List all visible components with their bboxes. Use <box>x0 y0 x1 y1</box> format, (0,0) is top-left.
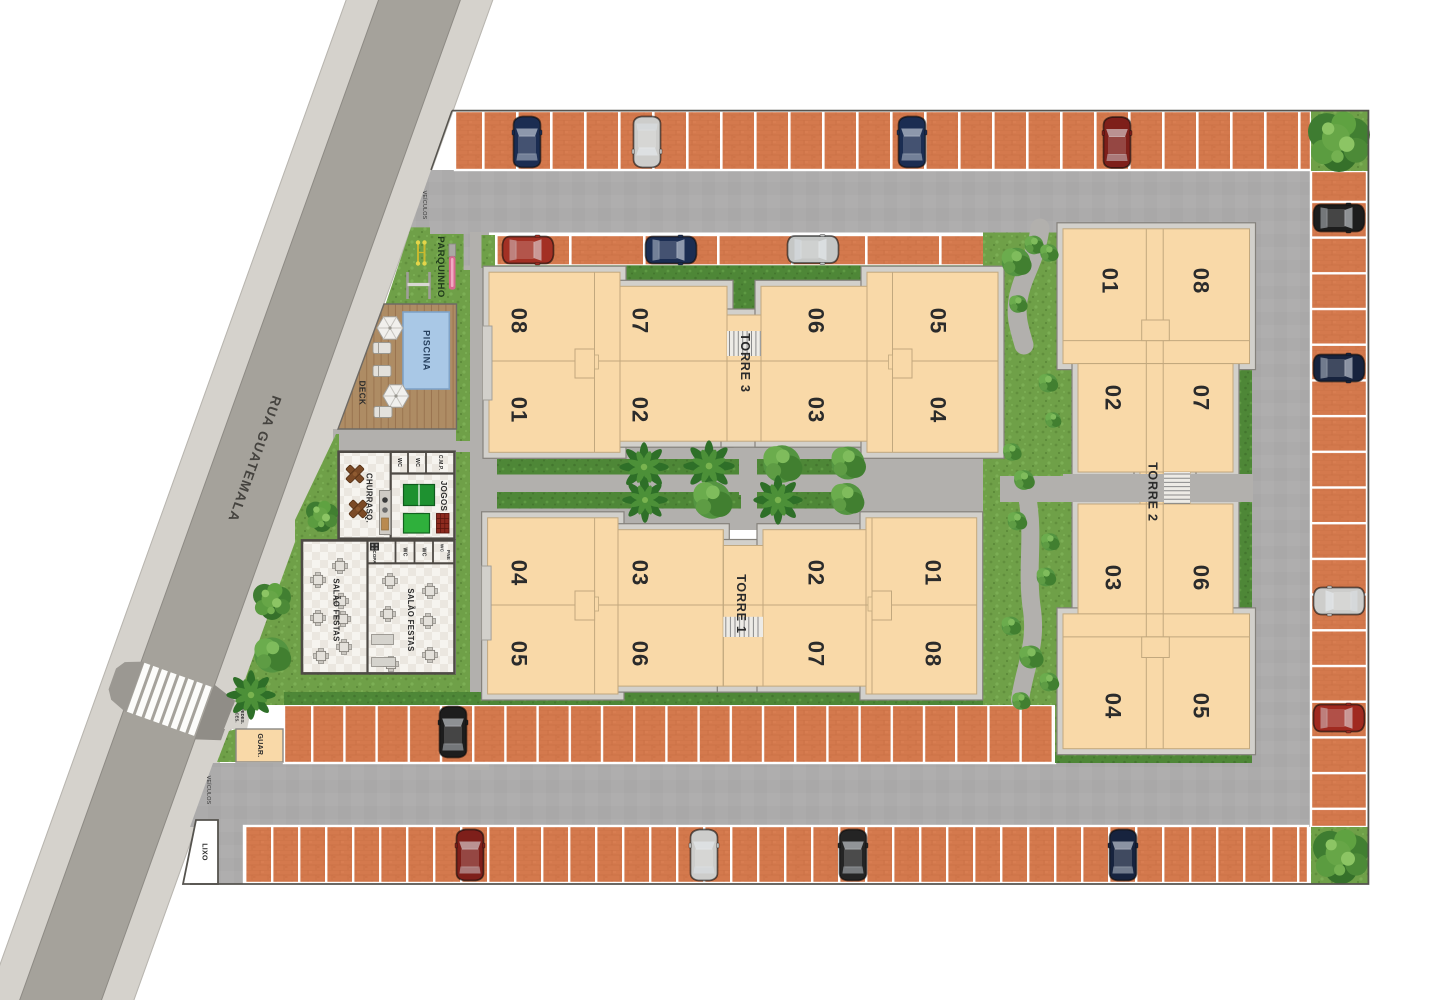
svg-text:WC: WC <box>439 544 445 553</box>
svg-text:05: 05 <box>926 308 951 334</box>
svg-text:SALÃO FESTAS: SALÃO FESTAS <box>332 578 341 641</box>
svg-text:01: 01 <box>1098 268 1123 294</box>
svg-text:CHURRASQ.: CHURRASQ. <box>365 473 374 523</box>
svg-text:05: 05 <box>507 641 532 667</box>
svg-text:03: 03 <box>804 397 829 423</box>
svg-text:06: 06 <box>628 641 653 667</box>
svg-text:WC: WC <box>402 547 408 556</box>
svg-text:TORRE 1: TORRE 1 <box>734 574 748 634</box>
svg-text:06: 06 <box>1189 565 1214 591</box>
svg-text:VEÍCULOS: VEÍCULOS <box>421 191 428 220</box>
svg-text:TORRE 2: TORRE 2 <box>1146 462 1160 522</box>
svg-text:02: 02 <box>804 560 829 586</box>
svg-text:SALÃO FESTAS: SALÃO FESTAS <box>406 588 415 651</box>
svg-text:C.M.P.: C.M.P. <box>437 455 443 471</box>
svg-text:COPA: COPA <box>372 550 377 564</box>
svg-text:07: 07 <box>628 308 653 334</box>
svg-text:01: 01 <box>921 560 946 586</box>
svg-text:DECK: DECK <box>358 381 367 406</box>
svg-text:03: 03 <box>1101 565 1126 591</box>
svg-text:JOGOS: JOGOS <box>439 481 448 512</box>
svg-text:07: 07 <box>804 641 829 667</box>
svg-text:01: 01 <box>507 397 532 423</box>
svg-text:GUAR.: GUAR. <box>256 733 263 757</box>
svg-text:06: 06 <box>804 308 829 334</box>
svg-text:07: 07 <box>1189 385 1214 411</box>
svg-text:WC: WC <box>414 458 420 467</box>
svg-text:PNE: PNE <box>445 550 451 561</box>
svg-text:05: 05 <box>1189 693 1214 719</box>
svg-text:WC: WC <box>421 547 427 556</box>
svg-text:02: 02 <box>628 397 653 423</box>
svg-text:TORRE 3: TORRE 3 <box>738 333 752 393</box>
svg-text:04: 04 <box>507 560 532 586</box>
svg-text:08: 08 <box>921 641 946 667</box>
svg-text:08: 08 <box>1189 268 1214 294</box>
svg-text:04: 04 <box>1101 693 1126 719</box>
svg-text:WC: WC <box>396 458 402 467</box>
svg-text:03: 03 <box>628 560 653 586</box>
svg-text:PARQUINHO: PARQUINHO <box>435 236 446 298</box>
svg-text:04: 04 <box>926 397 951 423</box>
svg-text:02: 02 <box>1101 385 1126 411</box>
svg-text:PISCINA: PISCINA <box>422 330 432 371</box>
svg-text:VEÍCULOS: VEÍCULOS <box>205 776 212 805</box>
svg-text:LIXO: LIXO <box>201 843 208 861</box>
svg-text:08: 08 <box>507 308 532 334</box>
